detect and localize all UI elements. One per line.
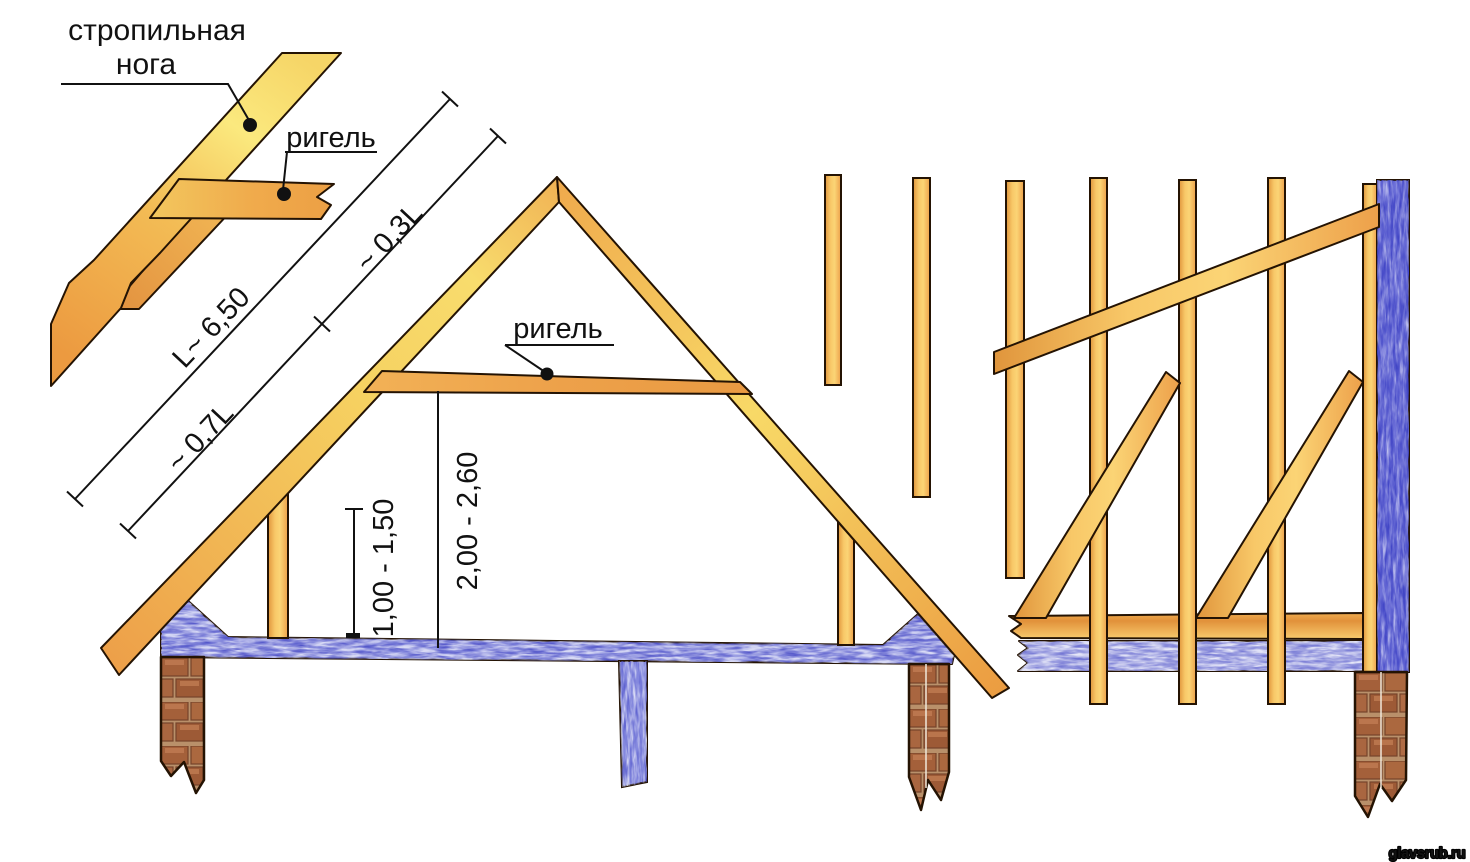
svg-text:1,00 - 1,50: 1,00 - 1,50	[368, 499, 400, 638]
svg-text:ригель: ригель	[513, 313, 602, 345]
svg-text:нога: нога	[116, 48, 177, 81]
svg-text:2,00 - 2,60: 2,00 - 2,60	[452, 452, 484, 591]
svg-text:glavsrub.ru: glavsrub.ru	[1389, 846, 1466, 862]
svg-text:стропильная: стропильная	[68, 14, 246, 47]
svg-text:ригель: ригель	[286, 122, 375, 154]
